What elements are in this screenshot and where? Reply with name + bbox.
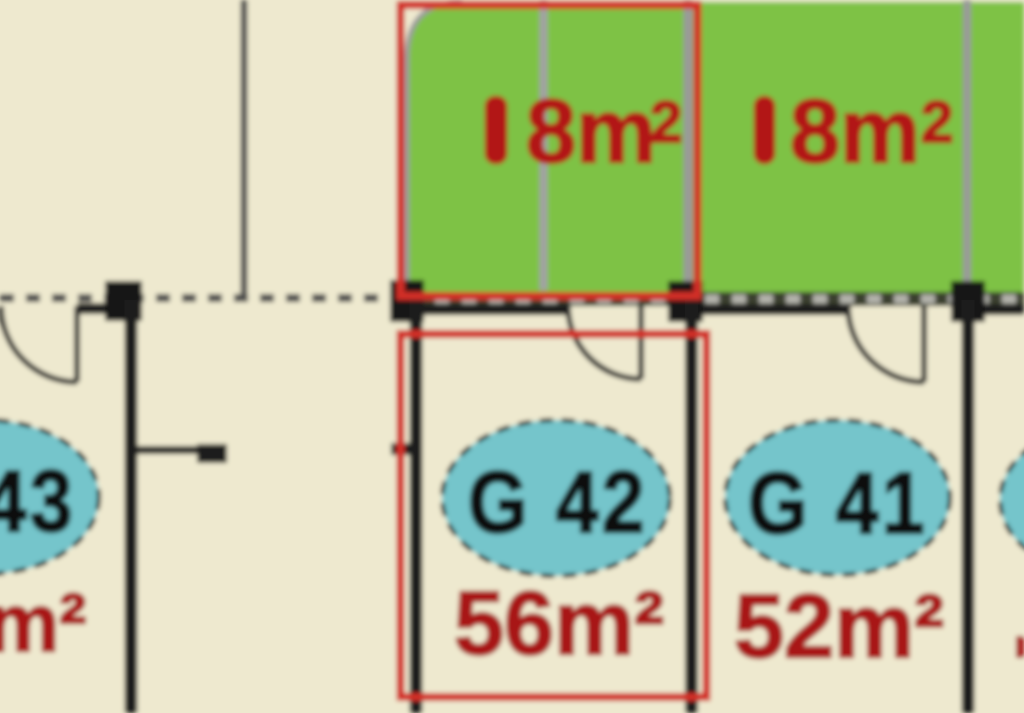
- svg-text:2: 2: [921, 90, 953, 155]
- svg-text:G 43: G 43: [0, 453, 76, 550]
- svg-text:8m: 8m: [526, 82, 656, 182]
- svg-text:56m²: 56m²: [454, 574, 664, 674]
- svg-text:54m²: 54m²: [0, 578, 86, 669]
- svg-text:G 41: G 41: [748, 455, 928, 552]
- svg-text:8m: 8m: [790, 82, 920, 182]
- svg-text:52m²: 52m²: [734, 577, 944, 677]
- svg-text:G 42: G 42: [468, 454, 648, 551]
- svg-text:2: 2: [650, 90, 682, 155]
